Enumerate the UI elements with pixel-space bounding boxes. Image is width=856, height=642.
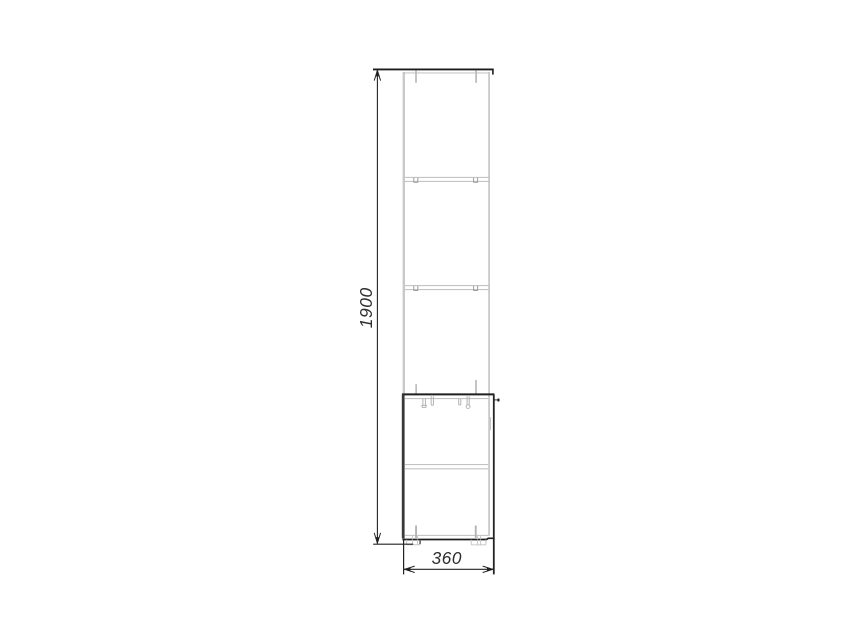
svg-text:1900: 1900	[356, 287, 376, 328]
svg-text:360: 360	[432, 548, 462, 568]
